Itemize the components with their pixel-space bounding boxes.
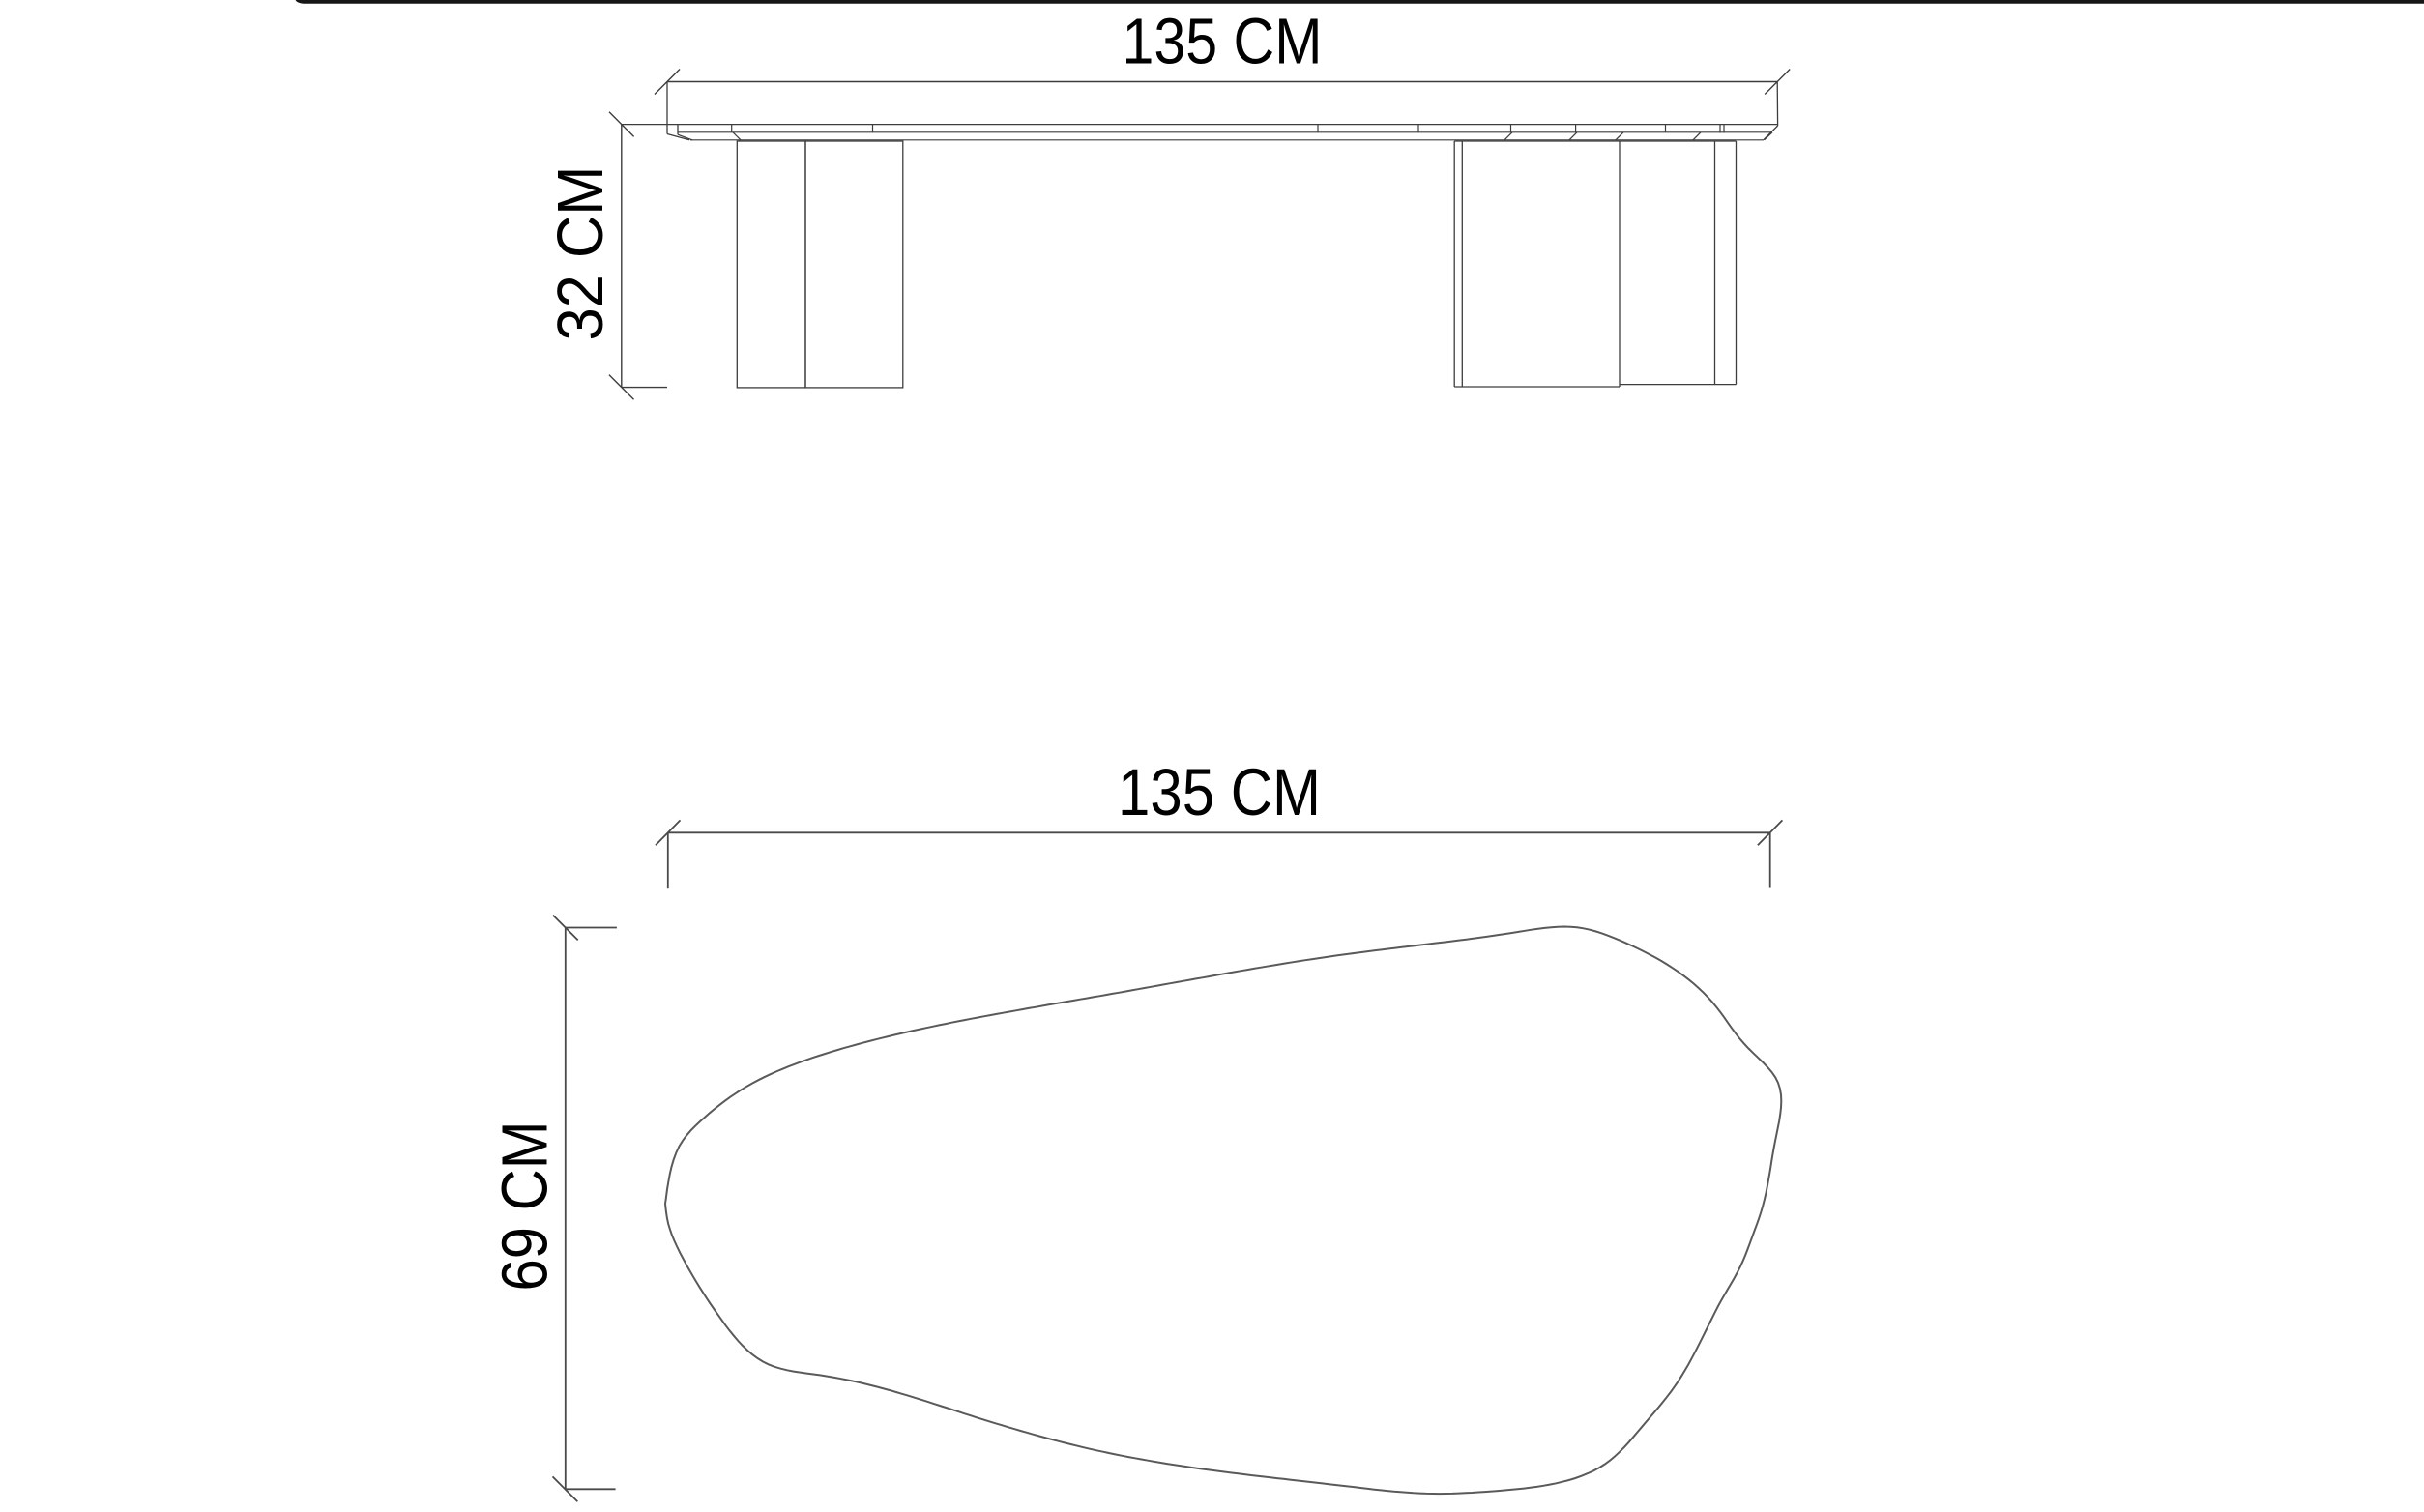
svg-text:135 CM: 135 CM	[1118, 755, 1321, 829]
svg-text:135 CM: 135 CM	[1123, 6, 1323, 78]
svg-text:69 CM: 69 CM	[489, 1121, 562, 1292]
svg-text:32 CM: 32 CM	[544, 166, 617, 341]
